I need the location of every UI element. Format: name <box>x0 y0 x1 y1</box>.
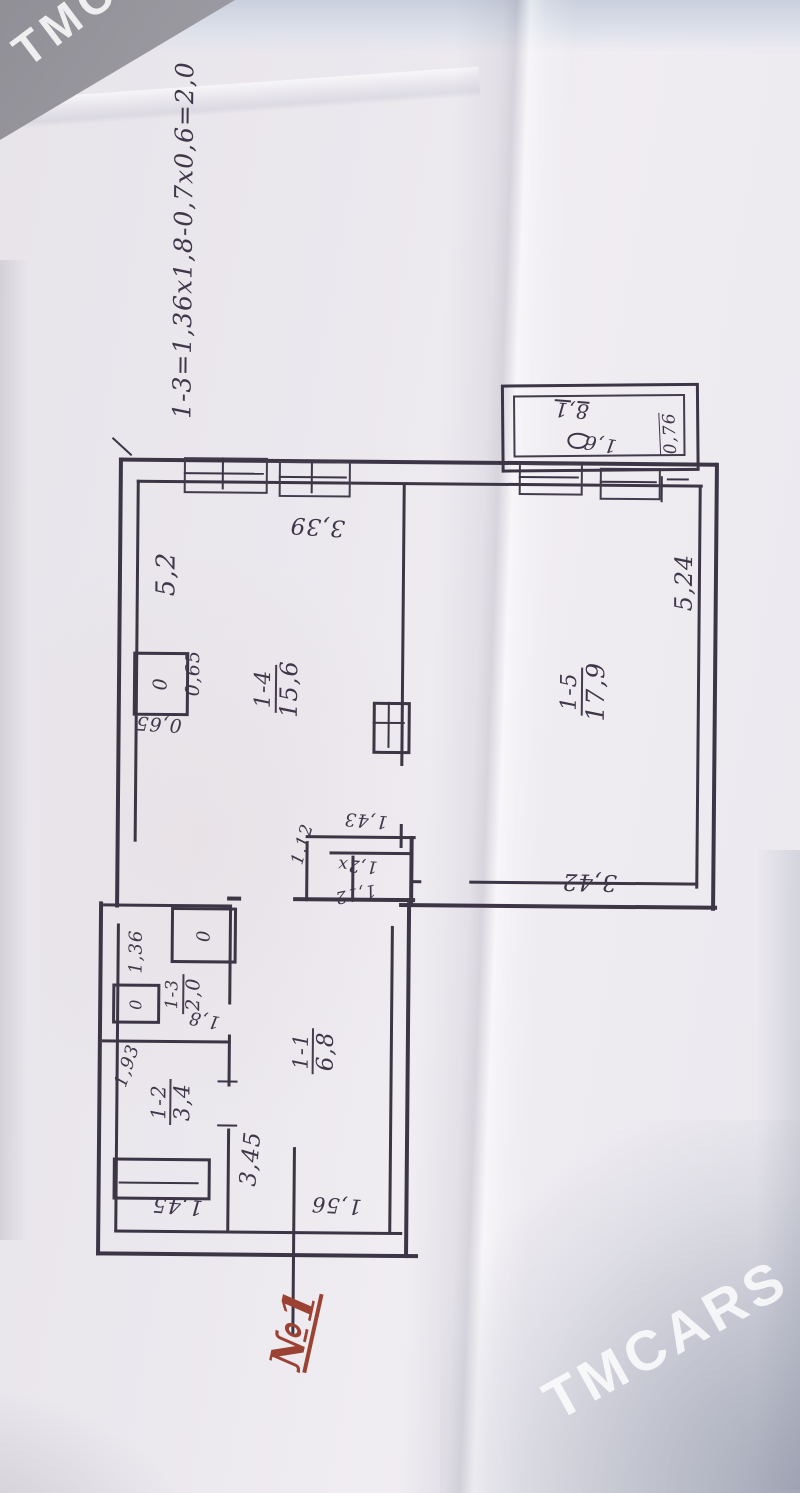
room-kitchen-id: 1-4 <box>252 664 278 713</box>
dim-closet-depth: 1,43 <box>334 807 398 834</box>
room-hall-area: 6,8 <box>314 1031 338 1071</box>
area-formula: 1-3=1,36х1,8-0,7х0,6=2,0 <box>156 45 209 435</box>
floor-plan: 0 0 0 1-3=1,36х1,8-0,7х0,6=2,0 5,2 3,39 … <box>0 0 800 1493</box>
wall-closet-top <box>306 835 416 839</box>
washbasin-glyph: 0 <box>193 929 214 942</box>
dim-kitchen-length: 5,2 <box>151 531 182 616</box>
window-kitchen-a <box>184 457 268 494</box>
stove-icon: 0 <box>133 652 190 716</box>
toilet-icon: 0 <box>112 983 160 1023</box>
dim-stove-side: 0,65 <box>182 642 205 704</box>
window-kitchen-a-tick <box>222 457 224 489</box>
room-bath-area: 3,4 <box>171 1083 194 1121</box>
door-tick-upper <box>218 1080 238 1082</box>
room-hall-id: 1-1 <box>290 1028 314 1075</box>
room-label-hall: 1-1 6,8 <box>284 1001 343 1102</box>
dim-balcony-num: 8,1 <box>542 395 600 425</box>
wall-living-bottom-outer <box>399 903 717 910</box>
door-tick-lower <box>217 1124 237 1126</box>
wall-bath-right-lower <box>226 1129 230 1233</box>
toilet-glyph: 0 <box>127 998 146 1009</box>
entrance-number-mark: №1 <box>252 1269 334 1389</box>
dim-wc-width: 1,36 <box>124 922 147 982</box>
room-living-id: 1-5 <box>558 667 584 716</box>
vent-shaft-divider-v <box>387 702 389 748</box>
dim-balcony-depth: 0,76 <box>659 403 682 464</box>
vent-shaft-icon <box>372 702 410 754</box>
wall-hall-top-stub <box>227 896 241 900</box>
washbasin-icon: 0 <box>171 907 237 964</box>
stove-glyph: 0 <box>150 677 172 690</box>
balcony-flourish <box>563 429 593 455</box>
wall-left-outer-upper <box>115 458 123 908</box>
photo-of-floor-plan-sheet: TMCARS TMCARS <box>0 0 800 1493</box>
balcony-door-tick-h <box>667 478 689 480</box>
dim-living-length: 5,24 <box>668 526 699 638</box>
dim-kitchen-width: 3,39 <box>266 506 368 546</box>
wall-bath-top <box>102 1039 230 1043</box>
room-label-living: 1-5 17,9 <box>548 632 619 751</box>
dim-wc-length: 1,8 <box>179 1005 228 1035</box>
dim-stove-front: 0,65 <box>126 710 191 738</box>
room-kitchen-area: 15,6 <box>277 660 303 718</box>
dim-living-width: 3,42 <box>542 864 637 898</box>
room-living-area: 17,9 <box>583 662 610 722</box>
balcony-window-b <box>600 468 661 501</box>
dim-closet-b: 1,2х <box>329 854 386 877</box>
balcony-door-tick-v <box>661 476 663 502</box>
dim-tub-length: 1,45 <box>133 1190 223 1223</box>
dim-hall-width: 1,56 <box>296 1190 377 1221</box>
wall-bottom-inner <box>114 1230 402 1236</box>
room-bath-id: 1-2 <box>148 1079 171 1124</box>
wall-wing-right-inner <box>388 926 394 1234</box>
dim-closet-b-width: 1,12 <box>323 878 388 910</box>
vent-shaft-divider-h <box>373 722 405 724</box>
window-kitchen-b <box>279 461 351 498</box>
wall-bottom-outer <box>96 1251 418 1258</box>
wall-right-outer <box>711 463 719 911</box>
room-label-bath: 1-2 3,4 <box>143 1054 200 1150</box>
wall-left-outer-lower <box>96 901 103 1255</box>
window-kitchen-b-tick <box>311 461 313 493</box>
wall-wing-right-outer <box>404 902 411 1258</box>
wall-closet-right <box>409 836 414 904</box>
room-label-kitchen: 1-4 15,6 <box>243 633 310 746</box>
corner-tick <box>112 437 133 456</box>
dim-hall-length: 3,45 <box>232 1108 269 1210</box>
dim-closet-width: 1,12 <box>285 814 320 875</box>
